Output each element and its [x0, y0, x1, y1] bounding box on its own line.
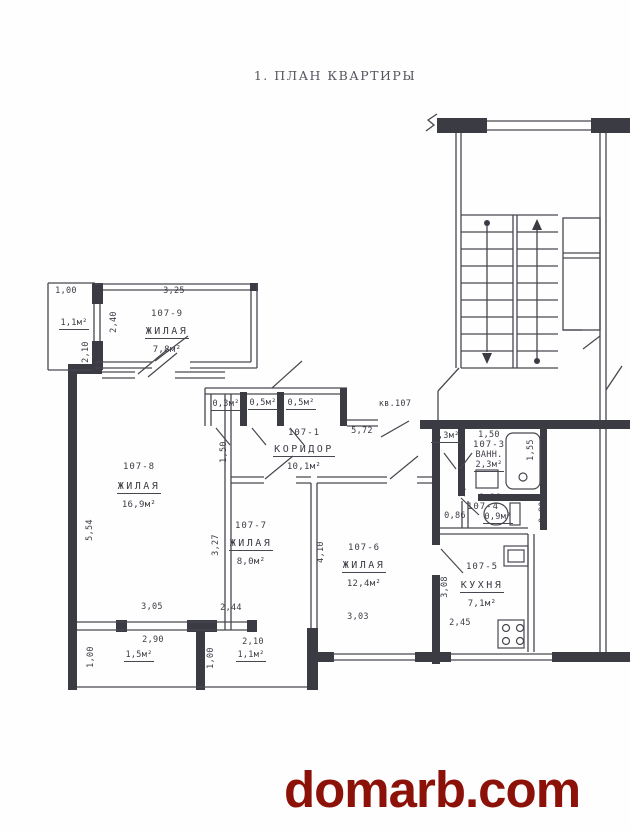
closet-2-area: 0,5м² — [245, 398, 281, 408]
dim-1-00-top: 1,00 — [48, 286, 84, 296]
scanned-floor-plan-page: 1. ПЛАН КВАРТИРЫ — [0, 0, 630, 831]
corridor-area: 10,1м² — [272, 462, 336, 472]
watermark-logo: domarb.com — [284, 760, 630, 819]
door-room6 — [390, 456, 418, 479]
washbasin-icon — [476, 470, 498, 488]
dim-1-50-corridor: 1,50 — [219, 430, 229, 474]
kitchen-area: 7,1м² — [450, 599, 514, 609]
dim-3-27: 3,27 — [211, 523, 221, 567]
room-107-6-area: 12,4м² — [332, 579, 396, 589]
bath-dim-1-50: 1,50 — [471, 430, 507, 440]
dim-2-90: 2,90 — [131, 635, 175, 645]
dim-5-54: 5,54 — [85, 508, 95, 552]
bath-area: 2,3м² — [471, 460, 507, 470]
dim-5-72: 5,72 — [344, 426, 380, 436]
dim-2-40: 2,40 — [109, 300, 119, 344]
room-107-9-id: 107-9 — [135, 309, 199, 319]
staircase — [426, 114, 622, 420]
toilet-area: 0,9м² — [480, 512, 516, 522]
dim-3-25: 3,25 — [156, 286, 192, 296]
balcony-top-area: 1,1м² — [52, 318, 96, 328]
room-107-7-name: ЖИЛАЯ — [219, 538, 283, 549]
dim-3-05: 3,05 — [130, 602, 174, 612]
dim-3-03: 3,03 — [336, 612, 380, 622]
kitchen-name: КУХНЯ — [450, 580, 514, 591]
bath-name: ВАНН. — [471, 450, 507, 460]
room-107-6-id: 107-6 — [332, 543, 396, 553]
apartment-number: кв.107 — [370, 399, 420, 409]
closet-1-area: 0,3м² — [208, 399, 244, 409]
balcony-bm-area: 1,1м² — [229, 650, 273, 660]
corridor-name: КОРИДОР — [272, 444, 336, 455]
room-107-6-name: ЖИЛАЯ — [332, 560, 396, 571]
dim-0-86: 0,86 — [437, 511, 473, 521]
closet-4-area: 0,3м² — [428, 431, 464, 441]
dim-2-10-b: 2,10 — [231, 637, 275, 647]
room-107-8-id: 107-8 — [107, 462, 171, 472]
room-107-8-name: ЖИЛАЯ — [107, 481, 171, 492]
room-107-7-id: 107-7 — [219, 521, 283, 531]
neighbor-door — [583, 336, 600, 349]
stair-steps — [461, 232, 558, 351]
dim-2-45: 2,45 — [438, 618, 482, 628]
entrance-door — [381, 421, 409, 437]
dim-0-80: 0,80 — [538, 490, 548, 534]
kitchen-id: 107-5 — [450, 562, 514, 572]
closet-3-area: 0,5м² — [283, 398, 319, 408]
elevator-shaft — [563, 218, 600, 330]
balcony-bl-area: 1,5м² — [117, 650, 161, 660]
stair-arrow-heads — [482, 219, 542, 364]
door-hall — [272, 361, 302, 388]
room-107-9-area: 7,8м² — [135, 345, 199, 355]
dim-1-55: 1,55 — [526, 428, 536, 472]
corridor-id: 107-1 — [272, 428, 336, 438]
dim-3-08: 3,08 — [440, 565, 450, 609]
room-107-8-area: 16,9м² — [107, 500, 171, 510]
dim-4-10: 4,10 — [316, 530, 326, 574]
dim-1-00-bm: 1,00 — [206, 636, 216, 680]
dim-1-00-bl: 1,00 — [86, 635, 96, 679]
bath-id: 107-3 — [471, 440, 507, 450]
dim-2-44: 2,44 — [209, 603, 253, 613]
floor-plan-drawing — [0, 0, 630, 831]
room-107-7-area: 8,0м² — [219, 557, 283, 567]
dim-2-10-left: 2,10 — [81, 330, 91, 374]
bathtub-drain-icon — [519, 473, 527, 481]
room-107-9-name: ЖИЛАЯ — [135, 326, 199, 337]
